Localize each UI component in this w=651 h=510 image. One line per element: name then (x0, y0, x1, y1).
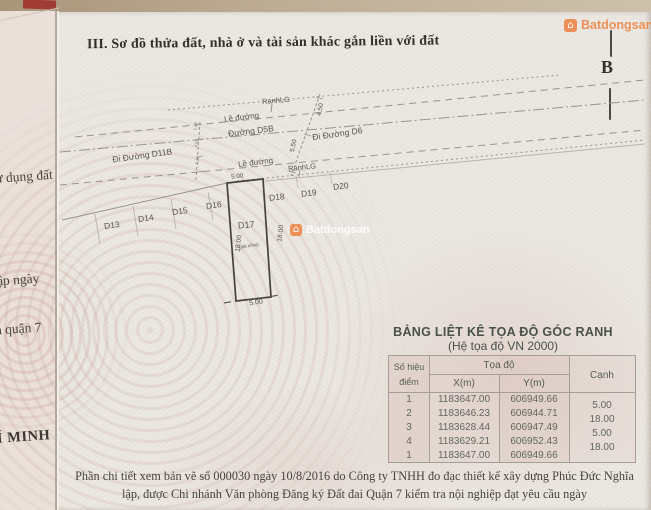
dim-top-5-00: 5.00 (231, 172, 244, 180)
table-row: 2 1183646.23 606944.71 (389, 406, 569, 420)
coord-x: 1183628.44 (429, 422, 499, 433)
table-row: 1 1183647.00 606949.66 (389, 392, 569, 406)
coord-y: 606949.66 (499, 394, 569, 405)
dim-5-50: 5.50 (289, 138, 299, 152)
dim-left-3: 1.25 (194, 155, 200, 165)
coord-y: 606949.66 (499, 450, 569, 461)
edge-length: 18.00 (569, 413, 635, 427)
document-photo: sử dụng đất ập ngày n quận 7 Í MINH III.… (0, 0, 651, 510)
ranh-lg-top-label: RanhLG (262, 95, 291, 106)
coordinate-table: Số hiệu điểm Tọa độ X(m) Y(m) Cạnh 1 118… (388, 355, 636, 463)
footer-line-2: lập, được Chi nhánh Văn phòng Đăng ký Đấ… (62, 487, 647, 502)
dim-left-18-00: 18.00 (234, 234, 243, 252)
coord-x: 1183646.23 (429, 408, 499, 419)
plot-label-d19: D19 (301, 187, 318, 199)
edge-length: 5.00 (569, 427, 635, 441)
table-row: 3 1183628.44 606947.49 (389, 420, 569, 434)
header-point-2: điểm (389, 378, 429, 388)
plot-d17-outline (227, 179, 271, 301)
plot-label-d20: D20 (333, 180, 350, 192)
coord-x: 1183629.21 (429, 436, 499, 447)
header-edge: Cạnh (569, 370, 635, 381)
ranh-lg-bottom-label: RanhLG (288, 161, 317, 173)
table-row: 1 1183647.00 606949.66 (389, 448, 569, 462)
coord-y: 606947.49 (499, 422, 569, 433)
boundary-line-right (265, 144, 645, 181)
point-id: 3 (389, 422, 429, 433)
dim-bottom-5-00: 5.00 (249, 298, 264, 307)
table-subtitle: (Hệ tọa độ VN 2000) (378, 339, 628, 353)
road-label-d11b: Đi Đường D11B (112, 146, 173, 164)
edge-length: 5.00 (569, 399, 635, 413)
ranh-lg-bottom-line (237, 140, 645, 181)
point-id: 1 (389, 450, 429, 461)
dim-right-18-00: 18.00 (276, 224, 285, 242)
header-y: Y(m) (499, 378, 569, 389)
plot-label-d17: D17 (238, 219, 255, 230)
footer-line-1: Phần chi tiết xem bản vẽ số 000030 ngày … (62, 469, 647, 484)
header-point-1: Số hiệu (389, 363, 429, 373)
plot-label-d15: D15 (171, 205, 188, 217)
plot-label-d18: D18 (269, 191, 286, 203)
coord-x: 1183647.00 (429, 450, 499, 461)
plot-label-d16: D16 (205, 199, 222, 211)
dim-4-50: 4.50 (316, 102, 325, 116)
edge-length: 18.00 (569, 441, 635, 455)
coord-x: 1183647.00 (429, 394, 499, 405)
point-id: 1 (389, 394, 429, 405)
dim-left-1: 1.25 (192, 121, 198, 131)
dim-left-2: 4.50 (193, 138, 199, 148)
coord-y: 606952.43 (499, 436, 569, 447)
table-row: 4 1183629.21 606952.43 (389, 434, 569, 448)
header-coords: Tọa độ (429, 360, 569, 371)
edge-lengths: 5.00 18.00 5.00 18.00 (569, 399, 635, 455)
le-duong-top-label: Lề đường (224, 111, 260, 124)
table-rows: 1 1183647.00 606949.66 2 1183646.23 6069… (389, 392, 569, 462)
plot-dividers-right (296, 172, 332, 188)
header-x: X(m) (429, 378, 499, 389)
coord-y: 606944.71 (499, 408, 569, 419)
point-id: 2 (389, 408, 429, 419)
road-label-d5b: Đường D5B (228, 123, 275, 139)
road-label-d6: Đi Đường D6 (312, 125, 364, 142)
table-grid-line (429, 374, 569, 375)
ranh-lg-top-line (168, 75, 560, 110)
plot-label-d13: D13 (103, 219, 120, 231)
plot-label-d14: D14 (137, 212, 154, 224)
point-id: 4 (389, 436, 429, 447)
table-title: BẢNG LIỆT KÊ TỌA ĐỘ GÓC RANH (378, 325, 628, 339)
